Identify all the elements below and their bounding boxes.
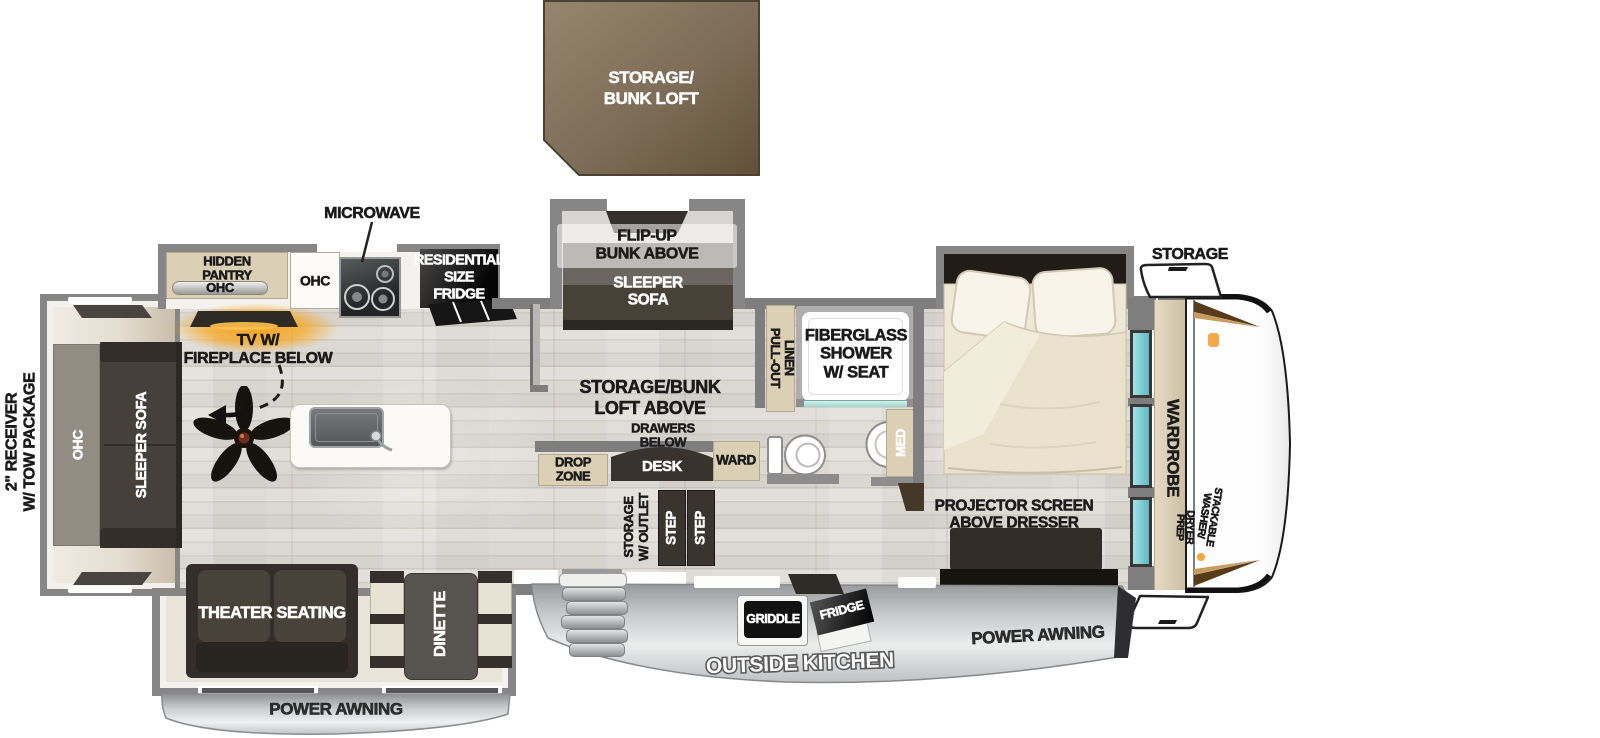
- svg-text:OUTSIDE KITCHEN: OUTSIDE KITCHEN: [706, 649, 895, 679]
